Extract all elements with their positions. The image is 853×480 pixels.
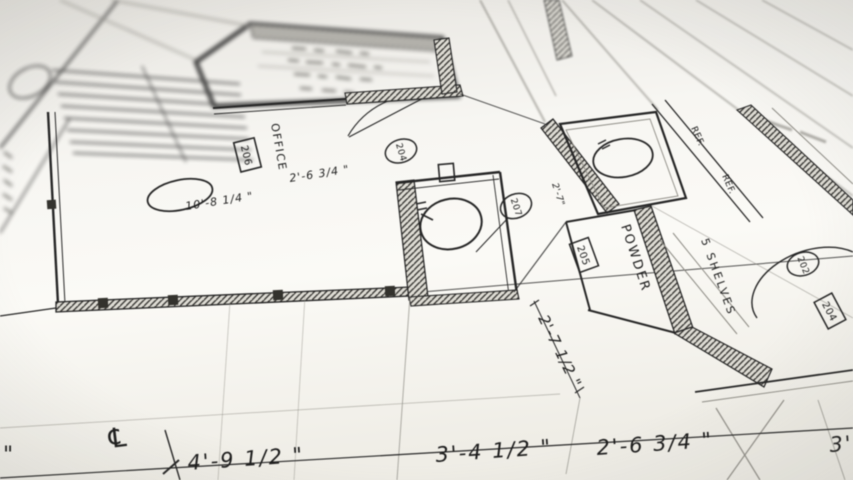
photo-vignette <box>0 0 853 480</box>
floor-plan-drawing: 206 OFFICE 2'-6 3/4 " 10'-8 1/4 " 204 <box>0 0 853 480</box>
blueprint-photo: 206 OFFICE 2'-6 3/4 " 10'-8 1/4 " 204 <box>0 0 853 480</box>
